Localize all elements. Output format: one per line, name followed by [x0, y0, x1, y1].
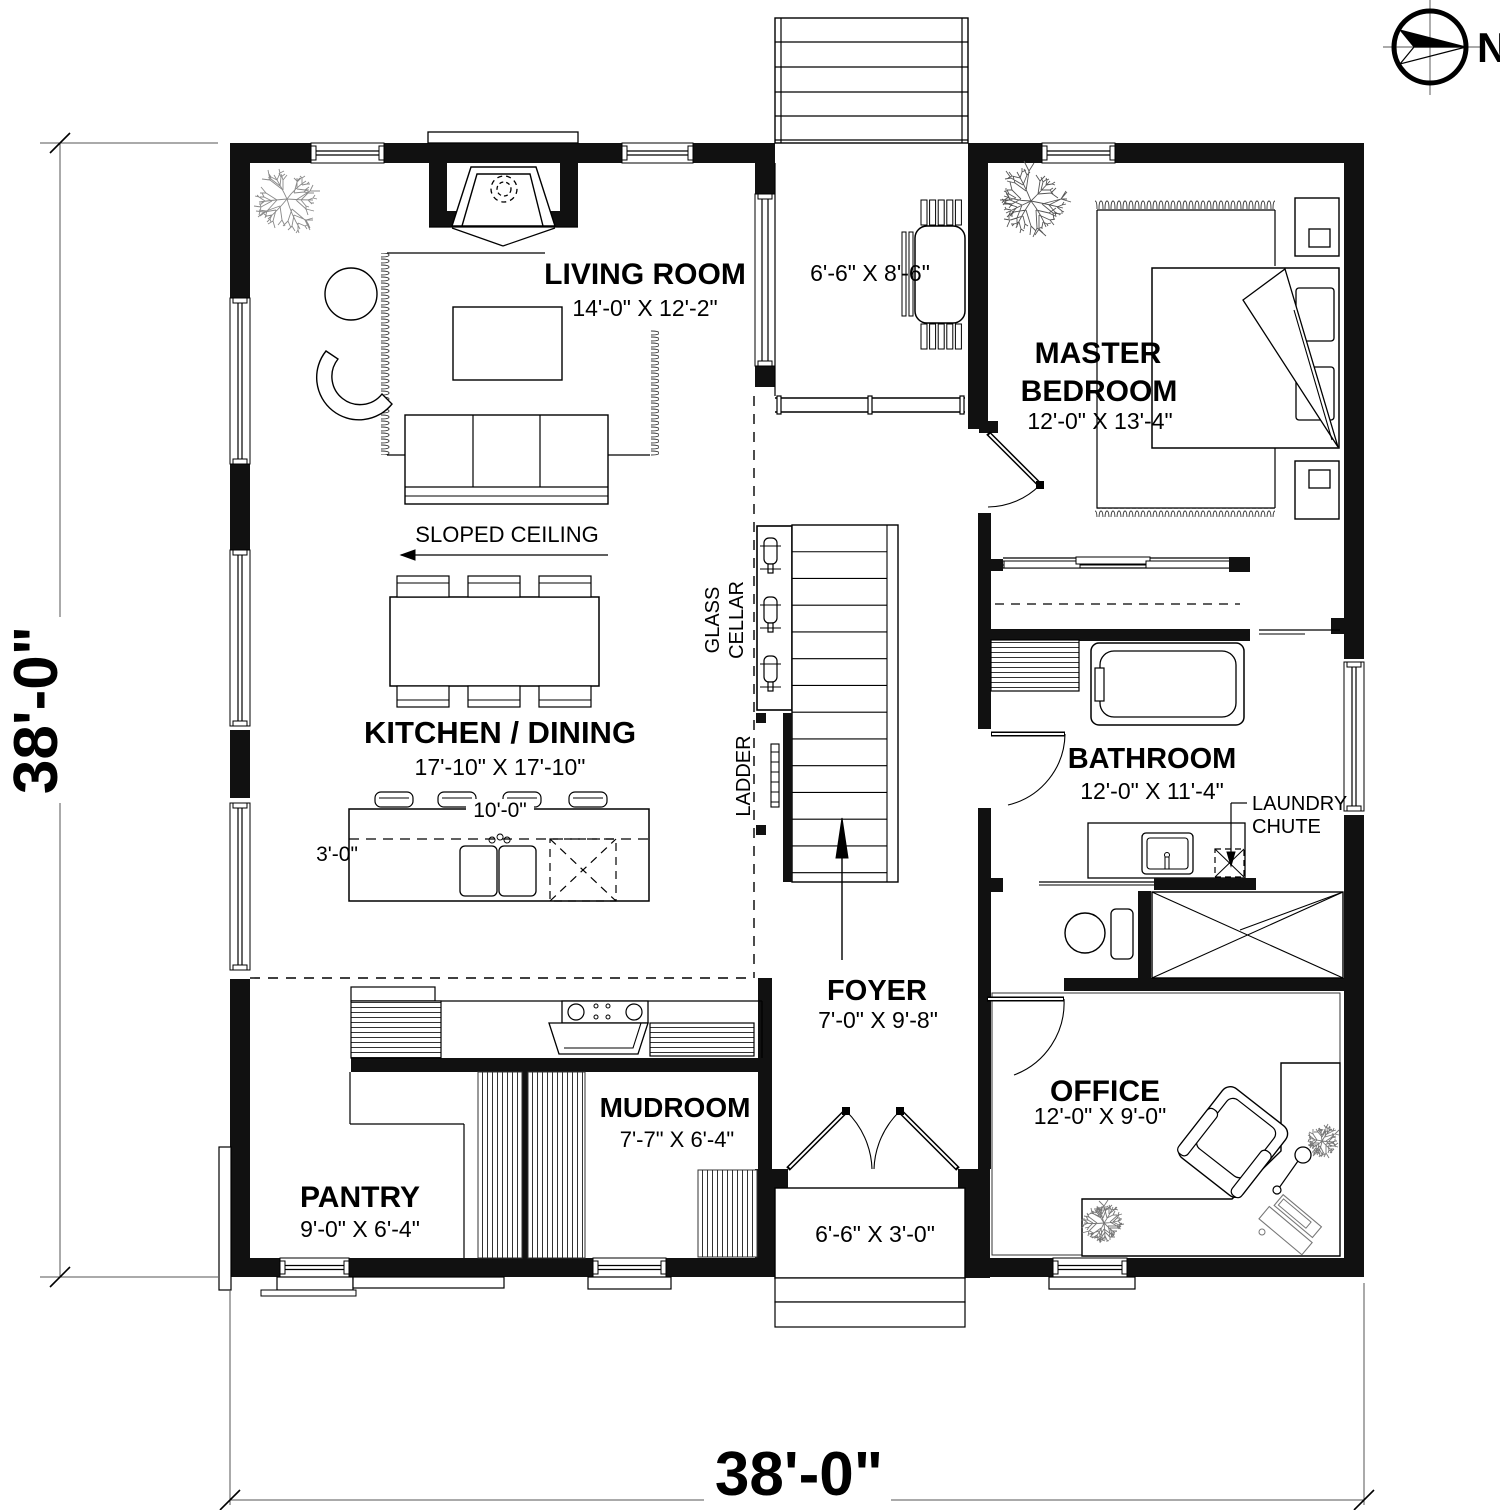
- svg-text:BEDROOM: BEDROOM: [1021, 375, 1178, 408]
- svg-text:38'-0": 38'-0": [2, 626, 71, 794]
- svg-text:7'-7" X 6'-4": 7'-7" X 6'-4": [620, 1127, 735, 1152]
- svg-text:7'-0" X 9'-8": 7'-0" X 9'-8": [818, 1007, 938, 1033]
- svg-text:SLOPED CEILING: SLOPED CEILING: [415, 522, 598, 547]
- svg-text:CHUTE: CHUTE: [1252, 816, 1321, 838]
- svg-text:6'-6" X 8'-6": 6'-6" X 8'-6": [810, 260, 930, 286]
- svg-text:10'-0": 10'-0": [473, 799, 527, 822]
- svg-text:BATHROOM: BATHROOM: [1068, 743, 1237, 775]
- svg-text:12'-0" X 11'-4": 12'-0" X 11'-4": [1080, 778, 1224, 804]
- svg-text:6'-6" X 3'-0": 6'-6" X 3'-0": [815, 1221, 935, 1247]
- svg-text:LIVING ROOM: LIVING ROOM: [544, 258, 746, 291]
- svg-text:N: N: [1477, 24, 1500, 71]
- svg-text:LAUNDRY: LAUNDRY: [1252, 793, 1347, 815]
- svg-text:PANTRY: PANTRY: [300, 1181, 420, 1214]
- svg-text:GLASS: GLASS: [702, 587, 724, 654]
- svg-text:KITCHEN / DINING: KITCHEN / DINING: [364, 715, 636, 750]
- svg-text:12'-0" X 9'-0": 12'-0" X 9'-0": [1034, 1103, 1167, 1129]
- svg-text:CELLAR: CELLAR: [726, 581, 748, 659]
- svg-text:3'-0": 3'-0": [316, 843, 358, 866]
- svg-text:12'-0" X 13'-4": 12'-0" X 13'-4": [1027, 408, 1172, 434]
- svg-text:9'-0" X 6'-4": 9'-0" X 6'-4": [300, 1216, 420, 1242]
- svg-text:17'-10" X 17'-10": 17'-10" X 17'-10": [415, 754, 586, 780]
- svg-text:LADDER: LADDER: [733, 735, 755, 816]
- svg-text:MUDROOM: MUDROOM: [600, 1092, 751, 1123]
- svg-text:FOYER: FOYER: [827, 975, 927, 1007]
- svg-text:MASTER: MASTER: [1035, 337, 1162, 370]
- svg-text:14'-0" X 12'-2": 14'-0" X 12'-2": [572, 295, 717, 321]
- svg-text:38'-0": 38'-0": [715, 1440, 883, 1509]
